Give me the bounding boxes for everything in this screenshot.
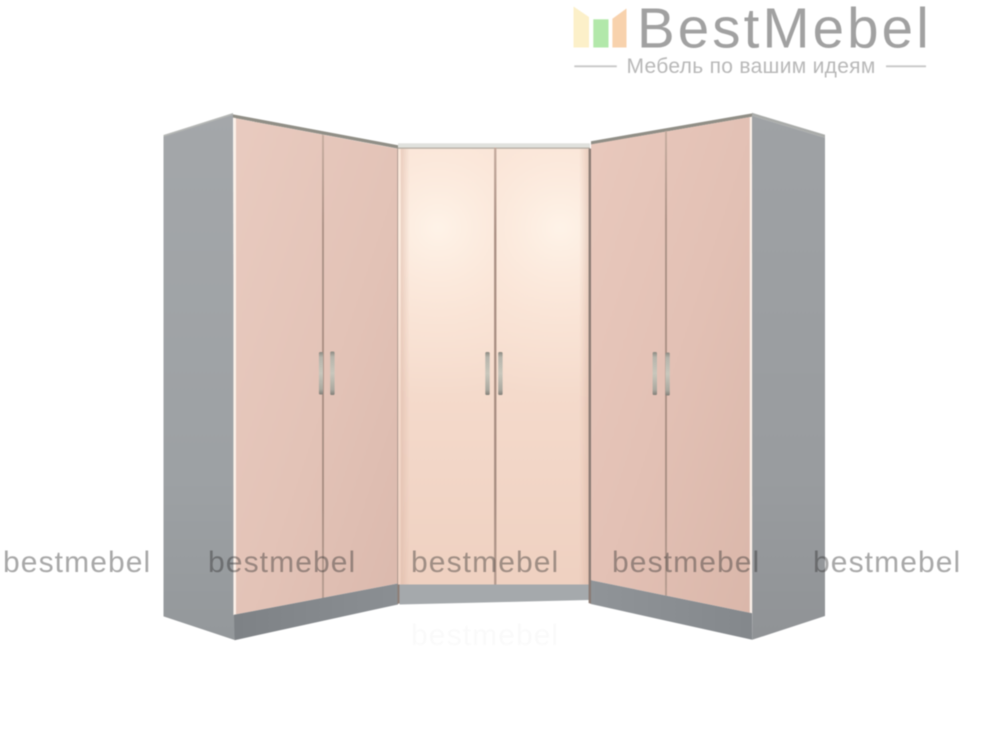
svg-text:bestmebel: bestmebel: [3, 546, 151, 579]
svg-text:Мебель по вашим идеям: Мебель по вашим идеям: [627, 55, 876, 78]
svg-text:bestmebel: bestmebel: [813, 546, 961, 579]
svg-text:bestmebel: bestmebel: [208, 546, 356, 579]
svg-text:bestmebel: bestmebel: [411, 619, 559, 652]
svg-text:bestmebel: bestmebel: [411, 546, 559, 579]
svg-text:bestmebel: bestmebel: [612, 546, 760, 579]
svg-text:BestMebel: BestMebel: [637, 0, 932, 60]
